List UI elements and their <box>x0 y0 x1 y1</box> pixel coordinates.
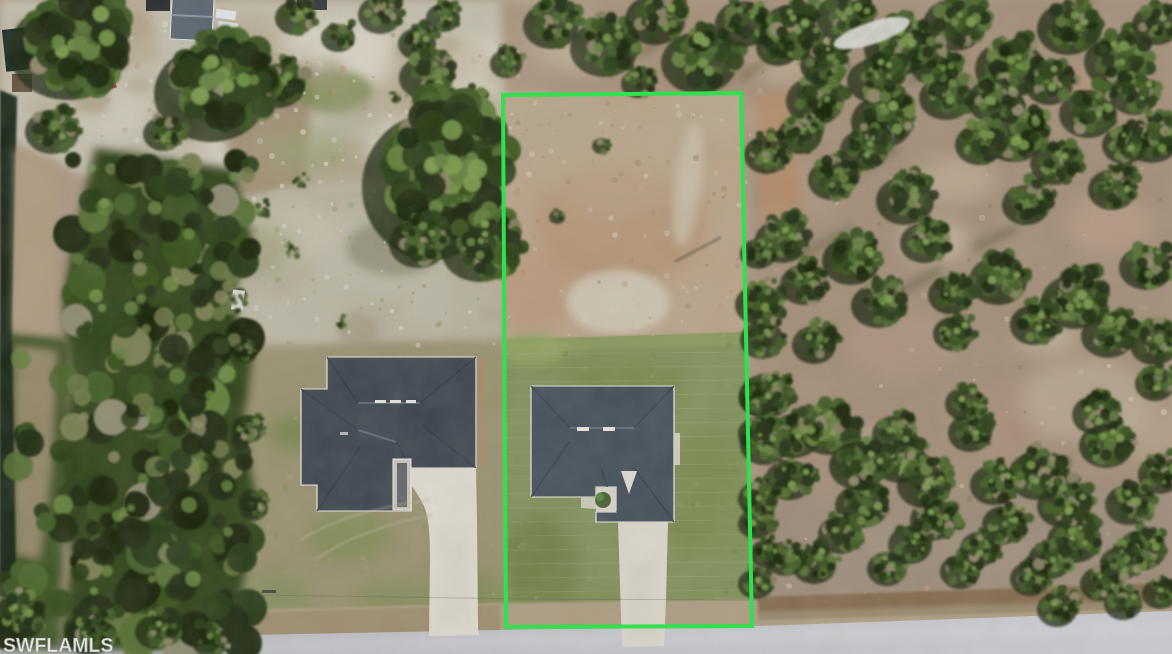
svg-text:SWFLAMLS: SWFLAMLS <box>3 634 113 654</box>
